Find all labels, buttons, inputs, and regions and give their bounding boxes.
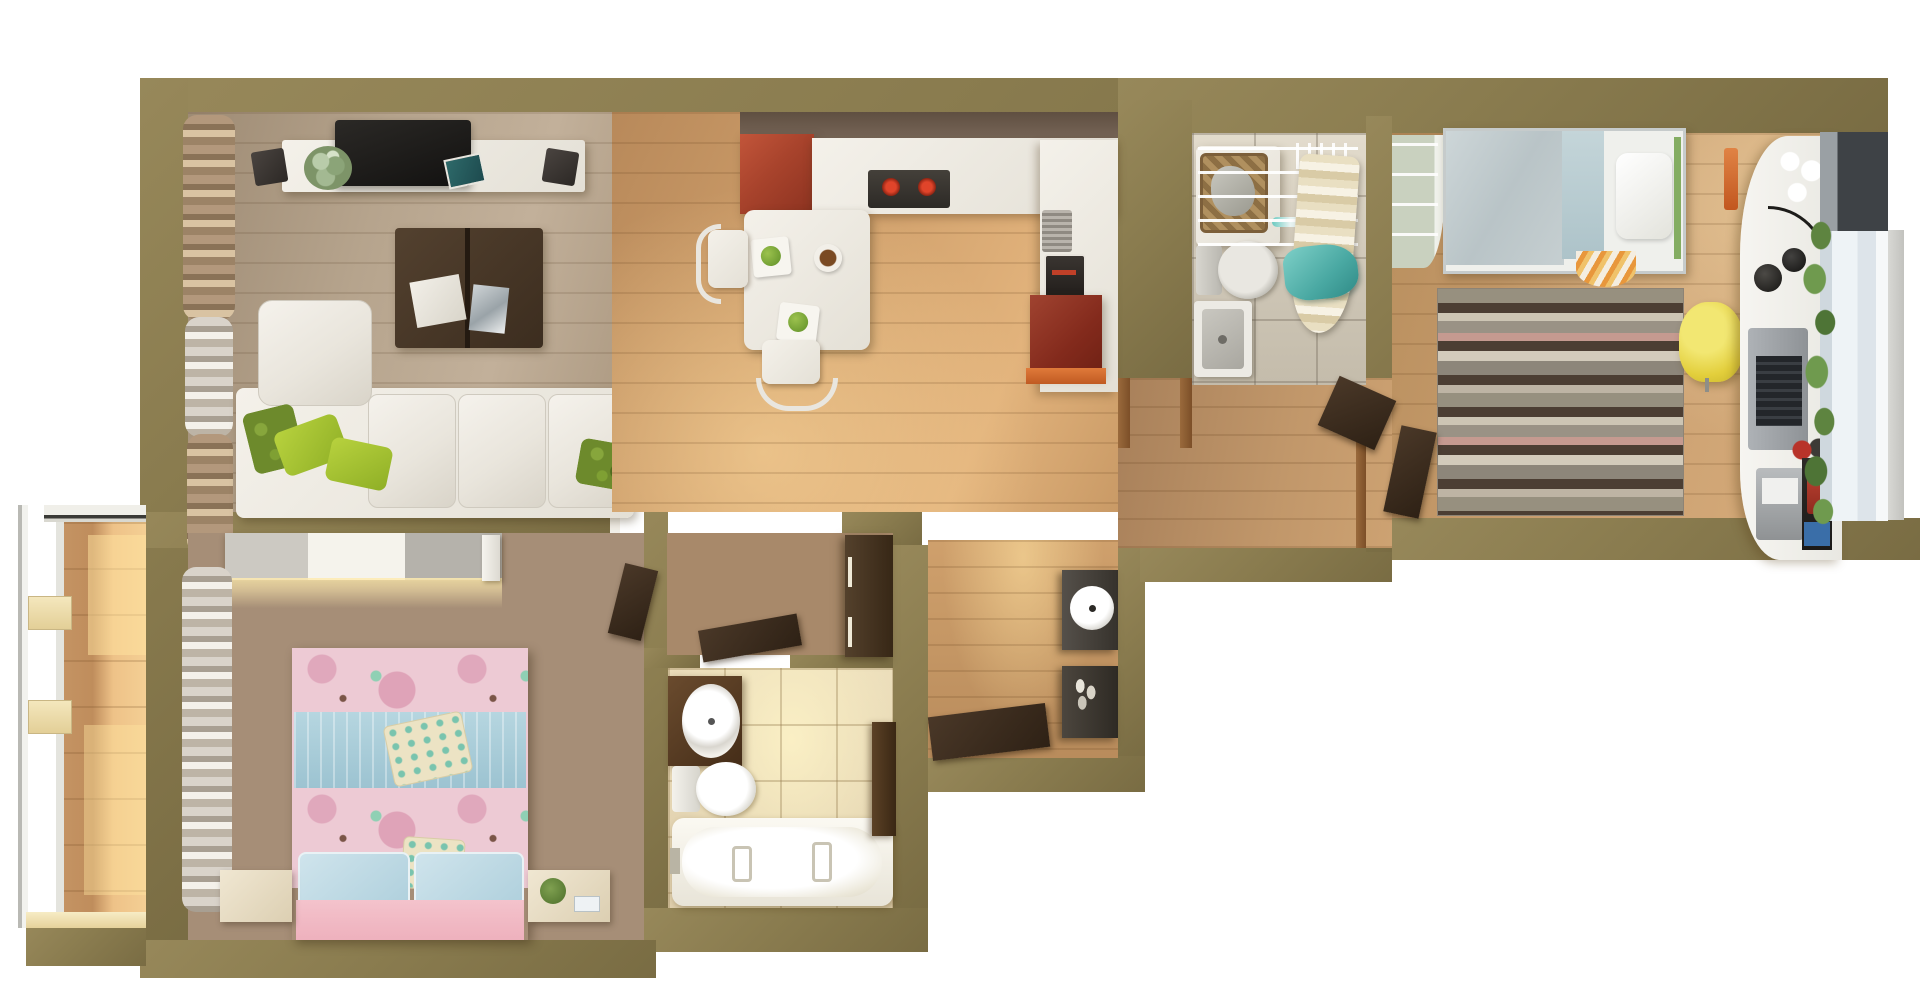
- entry-mirror-round: [1070, 586, 1114, 630]
- dish-drainer: [1042, 210, 1072, 252]
- balcony-sun-patch-2: [84, 725, 146, 895]
- wall-balcony-south: [26, 928, 146, 966]
- vanity-drain: [708, 718, 715, 725]
- nightstand-left: [220, 870, 292, 922]
- balcony-sill-1: [28, 596, 72, 630]
- balcony-frame-top: [44, 505, 146, 522]
- cabinet-handle-1: [848, 557, 852, 587]
- speaker-left: [251, 148, 289, 187]
- plate-2: [776, 302, 820, 345]
- hall-cabinet-dark: [845, 535, 893, 657]
- bed-sheet-pink: [296, 900, 524, 940]
- wardrobe-shelves: [1392, 135, 1445, 268]
- fruit-green-2: [787, 311, 809, 333]
- wall-entry-south: [928, 756, 1145, 792]
- room-living: [188, 112, 612, 512]
- chair-left-back: [696, 224, 721, 304]
- snack-bowl: [814, 244, 842, 272]
- cabinet-tall-dark: [872, 722, 896, 836]
- room-balcony: [18, 505, 146, 928]
- wardrobe-sliding: [225, 533, 502, 580]
- nightstand-clock: [574, 896, 600, 912]
- double-bed: [292, 648, 528, 940]
- bed-pillow: [1616, 153, 1672, 239]
- balcony-sill-2: [28, 700, 72, 734]
- speaker-right: [542, 148, 580, 187]
- fruit-green-1: [760, 245, 782, 267]
- chair-left: [696, 224, 748, 294]
- laptop-keyboard: [1756, 356, 1802, 426]
- sofa-corner: [236, 300, 634, 518]
- floor-plan-render: Top-down 3D render of a two-bedroom apar…: [0, 0, 1920, 984]
- entry-console: [1062, 570, 1118, 650]
- bed-frame-green-edge: [1674, 137, 1681, 259]
- desk-chair-yellow: [1675, 298, 1747, 392]
- orange-throw: [1576, 251, 1636, 287]
- chair-bottom: [756, 340, 828, 410]
- printer: [1756, 468, 1804, 540]
- nightstand-right: [528, 870, 610, 922]
- chair-bottom-back: [756, 378, 838, 411]
- vanity-basin: [682, 684, 740, 758]
- wall-bedroom-left-south: [140, 940, 656, 978]
- shelf-lines: [1392, 143, 1438, 261]
- burner-2: [918, 178, 936, 196]
- plant-pot: [304, 146, 352, 190]
- laptop: [1748, 328, 1808, 450]
- doorframe-duct-right: [1180, 378, 1192, 448]
- wall-duct: [1118, 100, 1192, 378]
- wash-basin: [1194, 301, 1252, 377]
- pencil-box-orange: [1724, 148, 1738, 210]
- lamp-head: [1754, 264, 1782, 292]
- cooktop: [868, 170, 950, 208]
- room-bedroom-right: [1392, 133, 1888, 518]
- plate-1: [750, 236, 792, 278]
- wardrobe-underglow: [225, 578, 502, 608]
- striped-rug: [1437, 288, 1684, 516]
- bed-duvet-grey: [1446, 131, 1564, 265]
- curtains-bedroom-left: [182, 567, 232, 912]
- bathtub: [672, 818, 893, 906]
- chair-yellow-seat: [1679, 302, 1743, 382]
- monstera-plant: [1800, 217, 1842, 527]
- cups-red-dots: [1778, 146, 1826, 208]
- sofa-chaise-back: [258, 300, 372, 406]
- nightstand-plant: [540, 878, 566, 904]
- chair-yellow-base: [1705, 378, 1709, 392]
- single-bed: [1443, 128, 1686, 274]
- sofa-seat-2: [458, 394, 546, 508]
- wall-bath-bottom-south: [644, 908, 928, 952]
- bathtub-handle-1: [732, 846, 752, 882]
- toilet-bottom: [672, 762, 760, 818]
- vanity-dark: [668, 676, 742, 766]
- burner-1: [882, 178, 900, 196]
- balcony-sill-bottom: [26, 912, 146, 928]
- wall-hall-entry-separator: [893, 545, 928, 908]
- basin-drain: [1218, 335, 1227, 344]
- oven: [1044, 254, 1086, 300]
- cabinet-orange-trim: [1026, 368, 1106, 384]
- wall-top-right: [1118, 78, 1888, 135]
- door-white-open: [482, 535, 500, 581]
- curtains-living-sheer: [185, 317, 233, 437]
- wall-corridor-south: [1140, 548, 1392, 582]
- curtains-living: [183, 115, 235, 320]
- room-bedroom-left: [188, 533, 644, 940]
- room-bathroom-top: [1192, 133, 1366, 385]
- room-bathroom-bottom: [668, 668, 893, 908]
- room-kitchen: [612, 112, 1118, 512]
- cabinet-handle-2: [848, 617, 852, 647]
- cabinet-red-lower: [1030, 295, 1102, 375]
- bathtub-handle-2: [812, 842, 832, 882]
- entry-shoe-cabinet: [1062, 666, 1118, 738]
- balcony-sun-patch-1: [88, 535, 146, 655]
- oven-handle: [1052, 270, 1076, 275]
- bathtub-inner: [682, 827, 882, 897]
- cabinet-red-upper: [740, 134, 814, 214]
- dining-table: [744, 210, 870, 350]
- mirror-center-dot: [1089, 605, 1096, 612]
- doorframe-duct-left: [1118, 378, 1130, 448]
- toilet-bottom-bowl: [696, 762, 756, 816]
- shoes: [1070, 674, 1104, 714]
- window-frame-right: [1888, 230, 1904, 520]
- bed-sheet-blue: [1562, 131, 1604, 259]
- printer-slot: [1762, 478, 1798, 504]
- bathtub-faucet: [670, 848, 680, 874]
